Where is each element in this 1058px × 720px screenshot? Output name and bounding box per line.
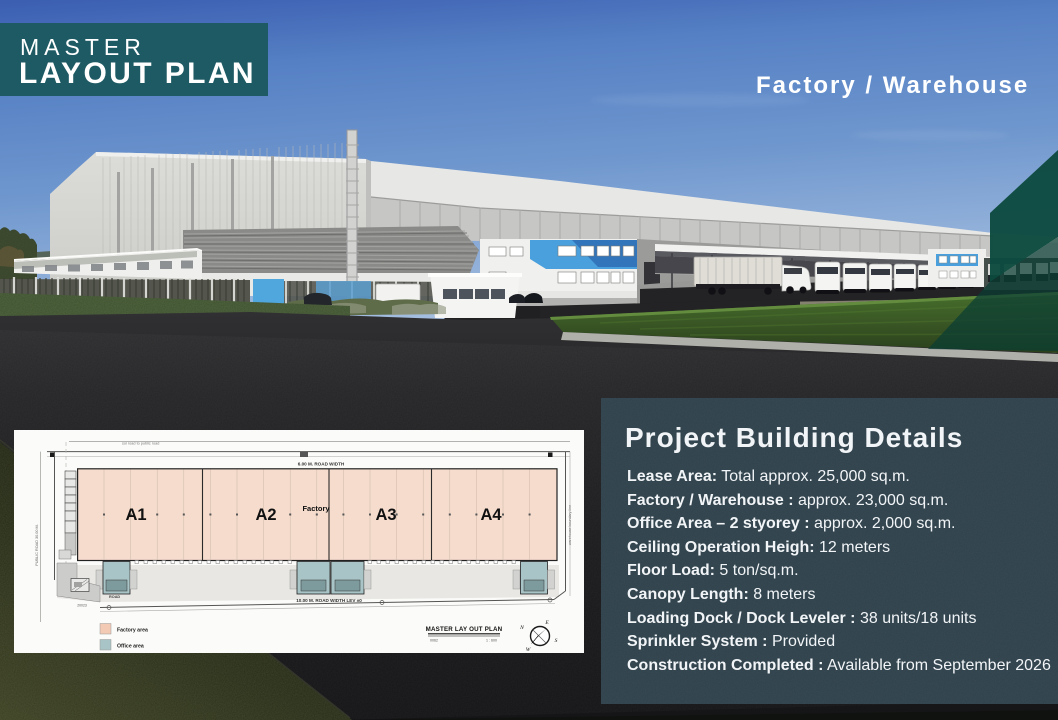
svg-text:Factory: Factory bbox=[302, 504, 330, 513]
svg-text:N: N bbox=[519, 625, 524, 631]
svg-text:S: S bbox=[555, 638, 558, 644]
svg-text:10.00 M. ROAD WIDTH LEV ±0: 10.00 M. ROAD WIDTH LEV ±0 bbox=[296, 598, 362, 603]
svg-text:A2: A2 bbox=[255, 506, 276, 524]
svg-text:Office area: Office area bbox=[117, 644, 144, 650]
svg-text:6.00 M. ROAD WIDTH: 6.00 M. ROAD WIDTH bbox=[298, 462, 345, 467]
svg-text:A1: A1 bbox=[125, 506, 146, 524]
svg-text:MASTER LAY OUT PLAN: MASTER LAY OUT PLAN bbox=[426, 626, 503, 633]
svg-text:Factory area: Factory area bbox=[117, 628, 148, 634]
svg-text:soi road to public road: soi road to public road bbox=[122, 442, 159, 446]
svg-text:ROAD: ROAD bbox=[109, 595, 120, 599]
svg-text:A3: A3 bbox=[375, 506, 396, 524]
svg-text:PUBLIC ROAD 30.00 M.: PUBLIC ROAD 30.00 M. bbox=[35, 524, 39, 566]
svg-text:0062: 0062 bbox=[430, 639, 438, 643]
svg-text:1 : 600: 1 : 600 bbox=[486, 639, 497, 643]
svg-text:A4: A4 bbox=[480, 506, 502, 524]
svg-text:E: E bbox=[544, 620, 549, 626]
svg-text:W: W bbox=[526, 647, 531, 653]
svg-text:warehouse boundary line: warehouse boundary line bbox=[568, 505, 572, 545]
svg-text:20023: 20023 bbox=[77, 604, 87, 608]
